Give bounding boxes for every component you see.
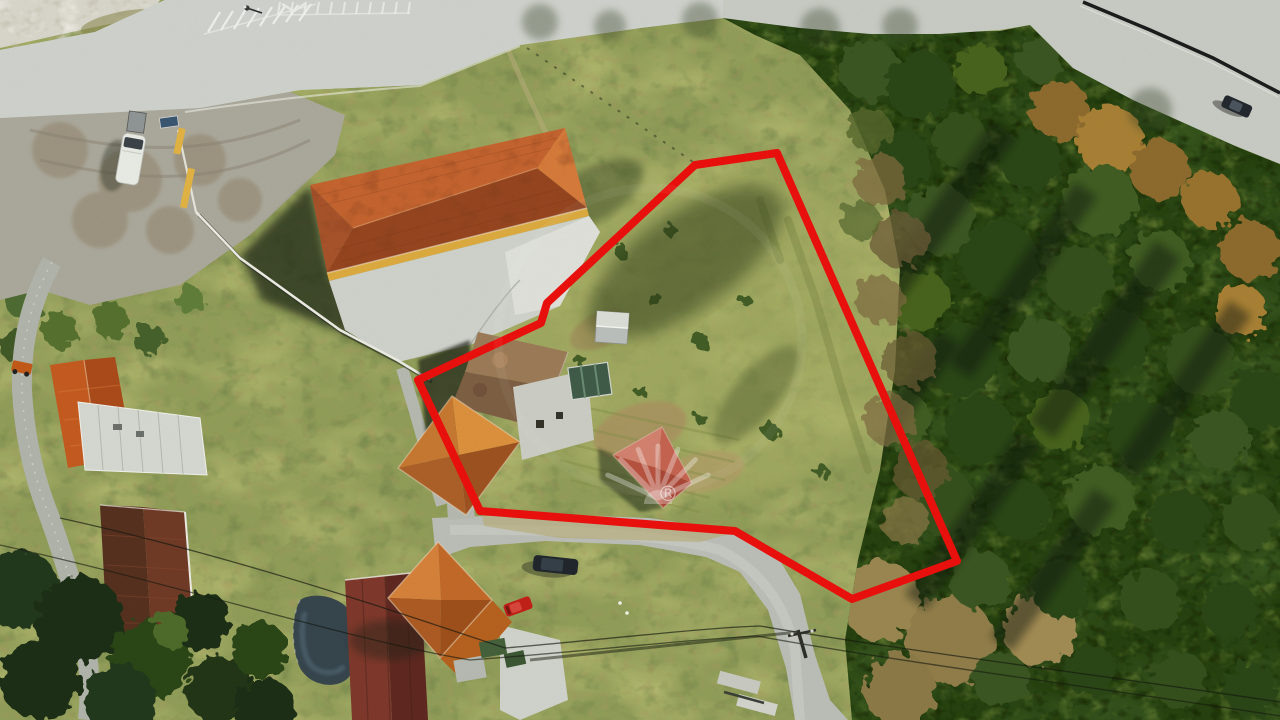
aerial-photo: ® xyxy=(0,0,1280,720)
aerial-photo-canvas: ® xyxy=(0,0,1280,720)
photo-grain xyxy=(0,0,1280,720)
